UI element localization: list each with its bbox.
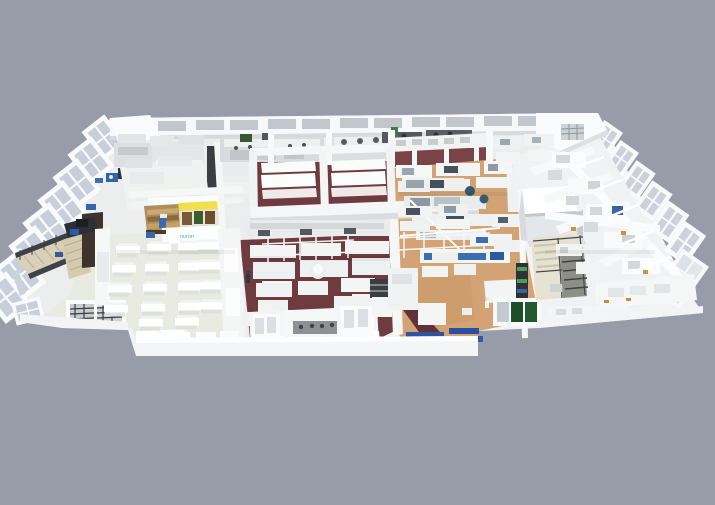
svg-text:nuron: nuron [180,234,194,240]
